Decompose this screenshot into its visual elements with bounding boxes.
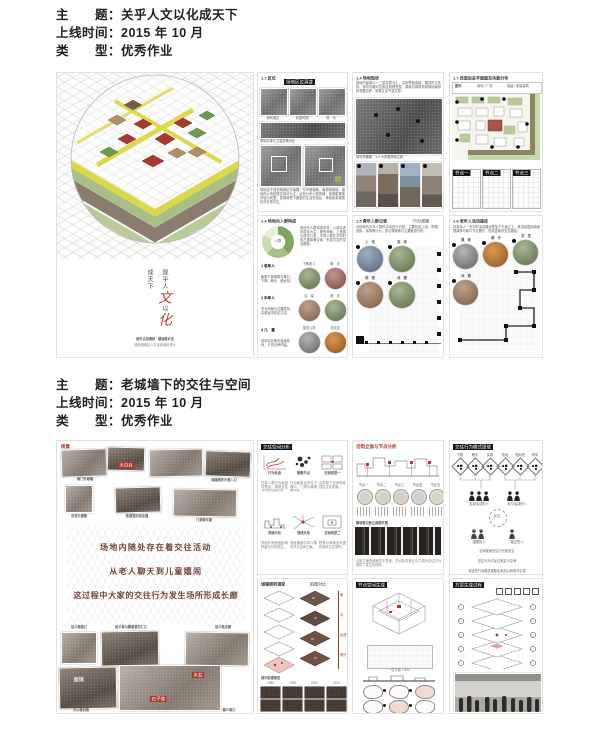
street-photo — [115, 486, 162, 513]
poster-node-generation[interactable]: 节点空间生成 一层平面 1:500 — [352, 578, 444, 714]
timeline-line — [338, 591, 339, 669]
photo-circle — [357, 282, 383, 308]
isometric-backdrop: 场地内随处存在着交往活动 从老人聊天到儿童嬉闹 这过程中大家的交往行为发生场所形… — [67, 527, 245, 623]
photo-circle — [389, 246, 415, 272]
photo-caption: 方心巷旧照 — [61, 708, 101, 714]
poster-title-chip: 方案生成过程 — [453, 582, 484, 588]
street-photo-4 — [421, 162, 443, 208]
section1-topic: 主 题：关乎人文以化成天下 — [56, 6, 238, 24]
map-thumb-minguo — [289, 88, 317, 116]
photo-circle — [325, 268, 346, 289]
photo-circle — [325, 332, 346, 353]
poster-site-status[interactable]: 1.4 场地现状 场地内建筑以一二层民居为主，沿街界面连续，屋顶形式多样。现状鸟… — [352, 72, 444, 212]
edge-marker — [437, 316, 441, 320]
figure-ground-thumb — [305, 700, 324, 711]
dense-elevation-strip — [355, 527, 441, 555]
poster-title-chip: 节点空间生成 — [356, 582, 387, 588]
detail-plan-3: 节点三 — [512, 169, 541, 209]
statement-line-2: 从老人聊天到儿童嬉闹 — [67, 567, 245, 583]
sub-label: 行为观察 — [413, 219, 429, 224]
photo-circle — [299, 268, 320, 289]
aerial-photo — [355, 98, 443, 155]
marker-dot — [420, 139, 424, 143]
photo-circle — [513, 240, 538, 265]
group-3: 3 儿 童 放学后在巷内追逐嬉戏，于花坛旁停留。 — [261, 328, 295, 358]
detail-plan-1: 节点一 — [452, 169, 481, 209]
analysis-cell: 聚集节点 行为聚集点多位于巷口、门洞与城墙根空地。 — [290, 453, 317, 507]
mini-diagram — [375, 507, 389, 516]
title-left: 城墙层积演变 — [261, 582, 285, 587]
figure-ground-thumb — [261, 687, 280, 698]
poster-layer-evolution[interactable]: 城墙层积演变 肌理对比 明 清 民国 现代 城市肌理演变 1980 1996 2… — [257, 578, 348, 714]
section2-type: 类 型：优秀作业 — [56, 412, 251, 430]
link-dot — [383, 689, 386, 692]
path-node — [425, 341, 428, 344]
street-photo — [101, 630, 160, 666]
poster-title-red: 沿街立面与节点分析 — [356, 444, 397, 450]
group-1: 1 老年人 聚集于城墙根与巷口，下棋、聊天、晒太阳。 — [261, 264, 295, 295]
street-photo — [173, 488, 237, 517]
paragraph: 场地内人群构成多样，以原住老年居民为主，兼有商贩、上班族与放学儿童，不同人群在不… — [300, 226, 346, 258]
street-photo: 面馆 — [59, 666, 118, 709]
section-number-label: 1.7 改造后总平面图及功能分布 — [453, 76, 508, 81]
number-dot — [356, 281, 360, 285]
number-dot — [452, 243, 456, 247]
link-dot — [409, 689, 412, 692]
section1-header: 主 题：关乎人文以化成天下 上线时间：2015 年 10 月 类 型：优秀作业 — [56, 6, 238, 60]
photo-label: 太白豆 — [118, 462, 135, 468]
photo-caption: 顺义巷口 — [209, 708, 249, 714]
poster-activity-path[interactable]: 1.8 老年人活动路径 将老年人一天中的活动路径叠加于平面之上，其活动围绕城墙根… — [449, 215, 543, 358]
figure-ground-thumb — [283, 687, 302, 698]
street-photo-2 — [377, 162, 399, 208]
statement-line-3: 这过程中大家的交往行为发生场所形成长廊 — [67, 591, 245, 607]
section-number-label: 1.1 区位 — [261, 76, 276, 81]
interaction-label: 交往 — [491, 514, 503, 524]
donut-center-label: 人群 — [271, 239, 285, 249]
link-dot — [383, 704, 386, 707]
dark-plan-layers — [300, 591, 330, 671]
figure-ground-thumb — [283, 700, 302, 711]
page: { "colors":{"accent_red":"#a8362c","ink"… — [0, 0, 606, 730]
poster-sketch-analysis[interactable]: 交往空间分析 行为轨迹 记录人群行为轨迹并叠加，得到交往活动的高频区域。 聚集节… — [257, 440, 348, 575]
massing-blob — [363, 685, 383, 699]
section-strip — [363, 674, 435, 682]
massing-blob — [415, 700, 435, 714]
number-dot — [379, 164, 383, 168]
people-group-participants — [506, 491, 521, 501]
section2-topic: 主 题：老城墙下的交往与空间 — [56, 376, 251, 394]
marker-dot — [396, 107, 400, 111]
path-node — [413, 341, 416, 344]
massing-blob — [389, 700, 409, 714]
photo-caption: 城墙根状元巷入口 — [197, 478, 251, 488]
street-photo — [205, 450, 252, 478]
interior-render-photo — [454, 673, 542, 713]
poster-masterplan[interactable]: 1.7 改造后总平面图及功能分布 图例 绿地 / 广场 保留 / 新建建筑 节点… — [449, 72, 543, 212]
node-circle — [429, 489, 444, 505]
number-dot — [512, 239, 516, 243]
timeline-tick: 民国 — [340, 633, 348, 643]
edge-marker — [437, 332, 441, 336]
node-circle — [393, 489, 409, 505]
photo-circle — [483, 242, 508, 267]
timeline-tick: 明 — [340, 593, 348, 603]
number-dot — [423, 164, 427, 168]
detail-title-chip: 节点三 — [513, 170, 531, 176]
photo-label: 水盆 — [192, 672, 204, 678]
exploded-axonometric — [454, 591, 540, 669]
floor-plan — [367, 645, 433, 669]
figure-ground-thumb — [327, 700, 346, 711]
poster-title-chip: 场地区位演变 — [284, 79, 315, 85]
sketch-interface — [261, 513, 288, 531]
path-node — [401, 341, 404, 344]
edge-marker — [437, 252, 441, 256]
sketch-trajectory — [261, 453, 288, 471]
photo-caption: 巷道里的老店铺 — [115, 514, 159, 524]
street-photo: 太白豆 — [107, 447, 146, 472]
photo-circle — [325, 300, 346, 321]
street-photo — [61, 448, 108, 478]
analysis-cell: 空间类型一 沿街檐下空间构成线性交往界面。 — [319, 453, 346, 507]
poster-axonometric-site[interactable]: 观乎人文以化成天下 城市认知调研 · 顺城巷片区 西安明城区人文化成城市设计 — [56, 72, 254, 358]
path-node — [389, 341, 392, 344]
figure-ground-thumb — [261, 700, 280, 711]
poster-crowd-composition[interactable]: 1.4 场地内人群构成 人群 场地内人群构成多样，以原住老年居民为主，兼有商贩、… — [257, 215, 348, 358]
legend-box: 图例 绿地 / 广场 保留 / 新建建筑 — [452, 82, 542, 94]
sketch-cluster — [290, 453, 317, 471]
people-group-passersby — [508, 529, 516, 539]
person-icons — [470, 529, 485, 539]
photo-circle — [389, 282, 415, 308]
people-silhouettes — [455, 692, 541, 712]
section1-type: 类 型：优秀作业 — [56, 42, 238, 60]
panorama-photo — [260, 122, 346, 139]
poster-street-collage[interactable]: 街景 太白豆 南门外城墙 城墙根状元巷入口 杂货示意摊 巷道里的老店铺 门洞修车… — [56, 440, 254, 714]
statement-line-1: 场地内随处存在着交往活动 — [67, 543, 245, 559]
number-dot — [482, 241, 486, 245]
green-marker — [335, 176, 341, 182]
figure-ground-thumb — [305, 687, 324, 698]
photo-label: 石子馍 — [150, 696, 167, 702]
massing-blob — [389, 685, 409, 699]
street-photo: 水盆 石子馍 — [119, 665, 221, 711]
number-dot — [388, 245, 392, 249]
mini-diagram — [393, 507, 407, 516]
poster-title-chip: 交往行为模式提取 — [453, 444, 493, 450]
street-photo-3 — [399, 162, 421, 208]
section-number-label: 1.8 老年人活动路径 — [453, 219, 488, 224]
title-right: 肌理对比 — [310, 582, 326, 587]
sketch-sightlines — [290, 513, 317, 531]
people-group-onlookers — [470, 529, 485, 539]
masterplan-drawing — [452, 94, 540, 160]
connector-lines — [453, 475, 541, 489]
edge-marker — [437, 284, 441, 288]
section-number-label: 1.4 场地内人群构成 — [261, 219, 296, 224]
sketch-courtyard — [319, 513, 346, 531]
street-photo — [185, 631, 250, 666]
paragraph: 场地内建筑以一二层民居为主，沿街界面连续，屋顶形式多样。现状鸟瞰可见街区肌理完整… — [356, 81, 441, 96]
detail-plan-2: 节点二 — [482, 169, 511, 209]
section1-time: 上线时间：2015 年 10 月 — [56, 24, 238, 42]
node-circle — [375, 489, 391, 505]
person-icons — [506, 491, 521, 501]
path-node — [377, 341, 380, 344]
mini-diagram — [357, 507, 371, 516]
number-dot — [357, 164, 361, 168]
legend-item: 图例 — [455, 84, 475, 94]
people-group-initiators — [468, 491, 490, 501]
facade-elevation-drawing — [355, 450, 441, 480]
focus-frame — [319, 158, 333, 172]
person-icons — [468, 491, 490, 501]
poster-subcaption: 西安明城区人文化成城市设计 — [97, 343, 213, 353]
analysis-cell: 行为轨迹 记录人群行为轨迹并叠加，得到交往活动的高频区域。 — [261, 453, 288, 507]
marker-dot — [374, 113, 378, 117]
corner-marker — [356, 336, 364, 344]
street-photo — [149, 449, 203, 478]
poster-behavior-patterns[interactable]: 交往行为模式提取 下棋 聊天 买菜 嬉戏 晒太阳 修车 发起活动的人 参与活动的… — [449, 440, 543, 575]
path-diagram — [450, 266, 542, 356]
poster-title-chip: 交往空间分析 — [261, 444, 292, 450]
exploded-stack-drawing — [262, 589, 296, 675]
analysis-cell: 空间类型二 院落与转角空地提供面状交往场所。 — [319, 513, 346, 567]
axonometric-city-drawing — [57, 73, 253, 259]
detail-title-chip: 节点二 — [483, 170, 501, 176]
satellite-large-2 — [304, 145, 346, 187]
poster-site-location-evolution[interactable]: 1.1 区位 场地区位演变 明代城区 民国时期 现 代 场地沿革与卫星影像对比 … — [257, 72, 348, 212]
section2-time: 上线时间：2015 年 10 月 — [56, 394, 251, 412]
number-dot — [356, 245, 360, 249]
section-number-label: 1.5 青年人群记录 — [356, 219, 387, 224]
figure-ground-thumb — [327, 687, 346, 698]
detail-title-chip: 节点一 — [453, 170, 471, 176]
street-photo — [61, 632, 97, 664]
map-thumb-ming — [260, 88, 288, 116]
photo-circle — [357, 246, 383, 272]
path-node — [365, 341, 368, 344]
photo-circle — [299, 332, 320, 353]
axonometric-line-drawing — [359, 591, 439, 643]
shop-sign: 面馆 — [74, 676, 84, 683]
marker-dot — [416, 119, 420, 123]
map-thumb-modern — [318, 88, 346, 116]
photo-caption: 杂货示意摊 — [63, 514, 95, 524]
street-photo-1 — [355, 162, 377, 208]
focus-frame — [271, 156, 287, 172]
photo-circle — [299, 300, 320, 321]
timeline-tick: 清 — [340, 613, 348, 623]
mini-diagram — [429, 507, 443, 516]
edge-marker — [437, 300, 441, 304]
node-circle — [411, 489, 427, 505]
mini-diagram — [411, 507, 425, 516]
number-dot — [401, 164, 405, 168]
paragraph: 对场地内青年人群的活动进行记录，主要包括上班、购物、逛街、休憩等行为，多沿顺城巷… — [356, 225, 441, 237]
poster-facade-analysis[interactable]: 沿街立面与节点分析 节点一 节点二 节点三 节点四 节点五 顺城巷沿街立面展开图… — [352, 440, 444, 575]
section2-header: 主 题：老城墙下的交往与空间 上线时间：2015 年 10 月 类 型：优秀作业 — [56, 376, 251, 430]
marker-dot — [386, 133, 390, 137]
calligraphy-title: 观乎人文以化成天下 — [145, 269, 174, 333]
paragraph: 沿街立面连续而富于变化，节点处的退让与门洞为交往行为提供了发生的场所。 — [356, 559, 441, 572]
massing-blob — [363, 700, 383, 714]
analysis-cell: 界面分析 界面开敞程度影响停留行为的发生。 — [261, 513, 288, 567]
number-dot — [388, 281, 392, 285]
satellite-large-1 — [260, 145, 302, 187]
timeline-tick: 现代 — [340, 653, 348, 663]
sketch-plan-type — [319, 453, 346, 471]
legend-item: 绿地 / 广场 — [477, 84, 505, 94]
edge-marker — [437, 268, 441, 272]
massing-blob — [415, 685, 435, 699]
poster-crowd-distribution[interactable]: 1.5 青年人群记录 行为观察 对场地内青年人群的活动进行记录，主要包括上班、购… — [352, 215, 444, 358]
group-2: 2 中年人 多为商贩与过路居民，买菜途中驻足交谈。 — [261, 296, 295, 327]
link-dot — [409, 704, 412, 707]
paragraph: 场地位于西安明城区东南隅，东邻顺城巷，南倚明城墙。基地内以传统居住街坊为主，沿街… — [260, 188, 345, 210]
person-icon — [508, 529, 516, 539]
street-photo — [65, 485, 93, 513]
poster-scheme-exploded[interactable]: 方案生成过程 — [449, 578, 543, 714]
legend-item: 保留 / 新建建筑 — [507, 84, 541, 94]
analysis-cell: 视线关系 视线通廊引导人群向节点空间汇聚。 — [290, 513, 317, 567]
conclusion-text: 空间促使交往行为的发生 交往行为又反过来定义空间 将这些行为模式提取出来加以利用… — [453, 549, 541, 575]
node-circle — [357, 489, 373, 505]
